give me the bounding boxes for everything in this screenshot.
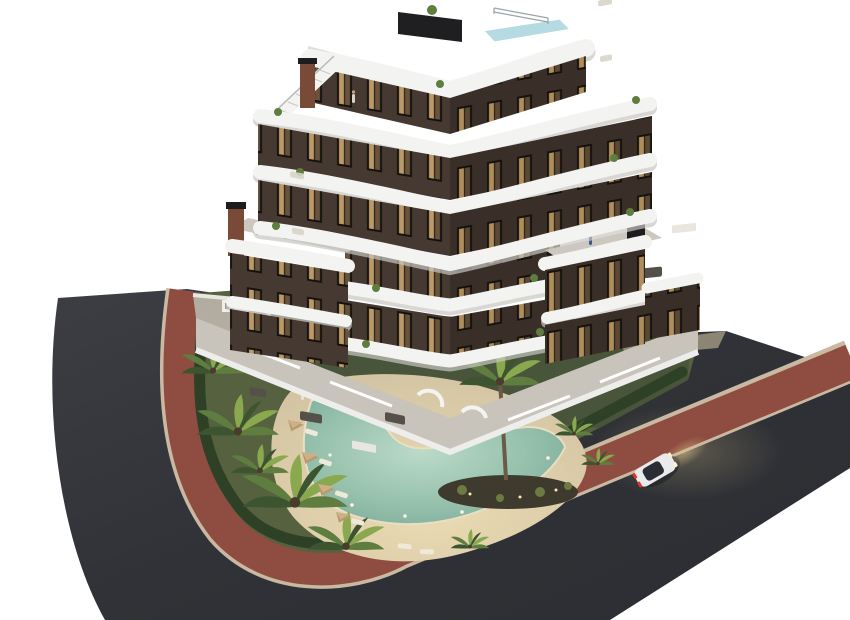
- roof-screen: [398, 12, 462, 42]
- scene-svg: [0, 0, 850, 620]
- roof-planter: [427, 5, 437, 15]
- rooftop-pool: [482, 18, 572, 43]
- chimney-brick-roof: [300, 62, 315, 108]
- render-canvas: [0, 0, 850, 620]
- roof-terrace-person: [352, 90, 355, 103]
